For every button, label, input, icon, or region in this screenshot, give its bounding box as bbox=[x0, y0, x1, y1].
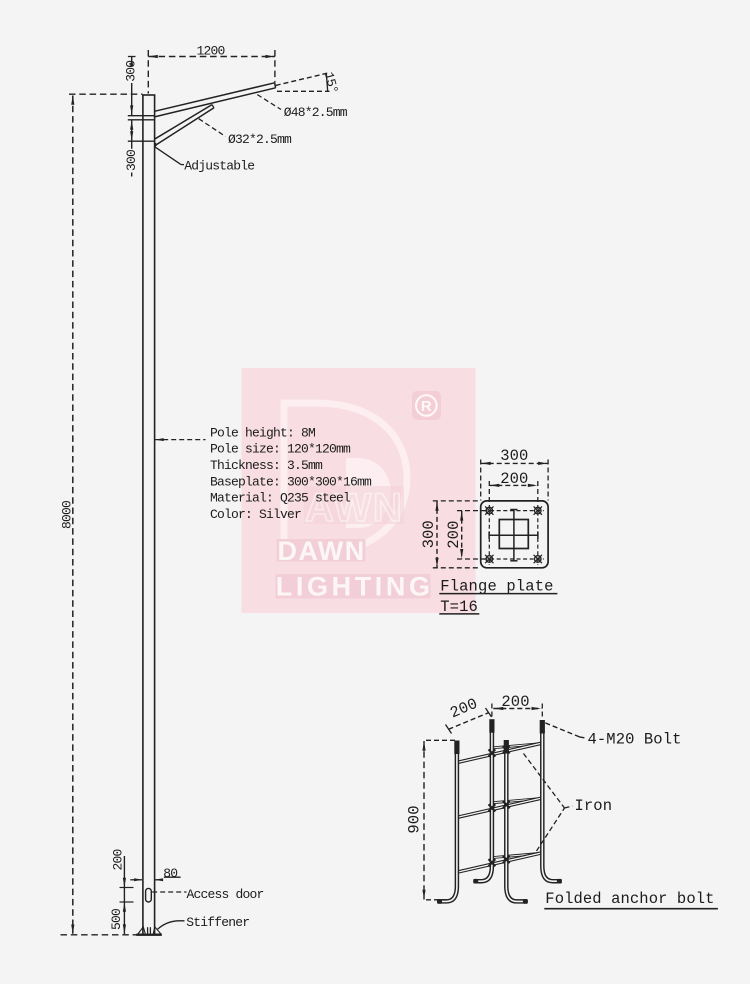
svg-text:Iron: Iron bbox=[575, 797, 613, 815]
svg-text:Material: Q235 steel: Material: Q235 steel bbox=[210, 491, 351, 506]
svg-text:300: 300 bbox=[420, 520, 438, 548]
svg-text:Adjustable: Adjustable bbox=[184, 159, 254, 174]
svg-text:Folded anchor bolt: Folded anchor bolt bbox=[545, 890, 714, 908]
svg-text:300: 300 bbox=[123, 61, 138, 82]
svg-text:R: R bbox=[421, 398, 432, 415]
svg-text:Flange plate: Flange plate bbox=[440, 578, 553, 596]
svg-text:200: 200 bbox=[110, 849, 125, 870]
svg-text:Ø32*2.5mm: Ø32*2.5mm bbox=[228, 132, 292, 147]
svg-text:1200: 1200 bbox=[196, 43, 224, 58]
svg-text:Baseplate: 300*300*16mm: Baseplate: 300*300*16mm bbox=[210, 474, 372, 489]
svg-text:200: 200 bbox=[501, 693, 529, 711]
svg-text:Thickness: 3.5mm: Thickness: 3.5mm bbox=[210, 458, 323, 473]
svg-text:Pole size: 120*120mm: Pole size: 120*120mm bbox=[210, 442, 351, 457]
svg-text:DAWN: DAWN bbox=[278, 536, 366, 566]
svg-text:4-M20 Bolt: 4-M20 Bolt bbox=[588, 731, 682, 749]
svg-text:300: 300 bbox=[500, 447, 528, 465]
svg-text:200: 200 bbox=[500, 470, 528, 488]
svg-text:Stiffener: Stiffener bbox=[186, 915, 249, 930]
svg-text:80: 80 bbox=[163, 866, 177, 881]
svg-text:Access door: Access door bbox=[187, 887, 264, 902]
svg-text:Color: Silver: Color: Silver bbox=[210, 507, 301, 522]
svg-text:8000: 8000 bbox=[59, 501, 74, 529]
svg-text:LIGHTING: LIGHTING bbox=[276, 572, 434, 602]
svg-text:300: 300 bbox=[124, 150, 139, 171]
svg-text:900: 900 bbox=[406, 805, 424, 833]
svg-text:200: 200 bbox=[445, 520, 463, 548]
svg-text:Ø48*2.5mm: Ø48*2.5mm bbox=[284, 105, 348, 120]
svg-text:Pole height: 8M: Pole height: 8M bbox=[210, 425, 315, 440]
svg-text:500: 500 bbox=[109, 909, 124, 930]
